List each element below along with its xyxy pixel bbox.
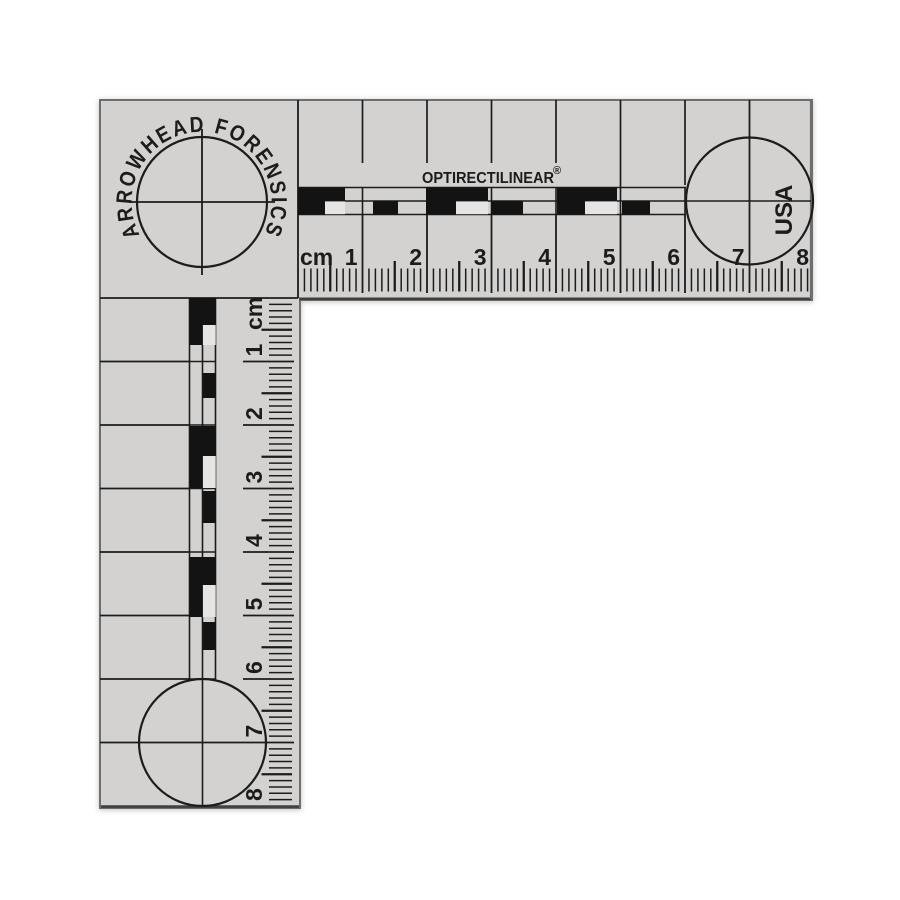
h-number-2: 2: [409, 244, 422, 270]
h-number-1: 1: [345, 244, 358, 270]
h-bar-black-near: [491, 201, 523, 214]
v-bar-black-near: [203, 491, 216, 523]
h-number-6: 6: [667, 244, 680, 270]
v-bar-black-near: [203, 557, 216, 585]
h-bar-notch-white: [456, 201, 488, 214]
h-number-3: 3: [474, 244, 487, 270]
h-bar-black-near: [426, 201, 456, 214]
cm-label-horizontal: cm: [300, 244, 333, 270]
v-number-3: 3: [241, 471, 267, 484]
v-bar-notch-white: [203, 325, 216, 345]
v-bar-black-near: [203, 622, 216, 650]
v-number-1: 1: [241, 344, 267, 357]
h-bar-notch-white: [325, 201, 345, 214]
h-number-7: 7: [732, 244, 745, 270]
h-bar-black-near: [557, 201, 585, 214]
forensic-l-scale: 1234567812345678 ARROWHEAD FORENSICS OPT…: [0, 0, 900, 900]
v-number-2: 2: [241, 407, 267, 420]
cm-label-vertical: cm: [241, 297, 267, 330]
forensic-l-scale-photo: 1234567812345678 ARROWHEAD FORENSICS OPT…: [0, 0, 900, 900]
h-bar-black-far: [298, 188, 345, 201]
h-bar-black-near: [373, 201, 398, 214]
v-bar-black-far: [190, 557, 203, 617]
usa-label: USA: [771, 185, 798, 236]
v-number-5: 5: [241, 598, 267, 611]
v-bar-black-near: [203, 373, 216, 398]
v-bar-notch-white: [203, 456, 216, 488]
h-bar-black-far: [557, 188, 617, 201]
v-bar-notch-white: [203, 585, 216, 617]
h-number-4: 4: [538, 244, 551, 270]
v-bar-black-near: [203, 426, 216, 456]
h-bar-black-near: [622, 201, 650, 214]
v-bar-black-far: [190, 298, 203, 345]
h-number-8: 8: [796, 244, 809, 270]
h-number-5: 5: [603, 244, 616, 270]
h-bar-notch-white: [585, 201, 617, 214]
v-bar-black-near: [203, 298, 216, 325]
v-number-4: 4: [241, 534, 267, 547]
v-bar-black-far: [190, 426, 203, 488]
v-number-6: 6: [241, 661, 267, 674]
h-bar-black-near: [298, 201, 325, 214]
product-name-label: OPTIRECTILINEAR: [422, 170, 554, 187]
h-bar-black-far: [426, 188, 488, 201]
registered-mark: ®: [553, 165, 561, 177]
